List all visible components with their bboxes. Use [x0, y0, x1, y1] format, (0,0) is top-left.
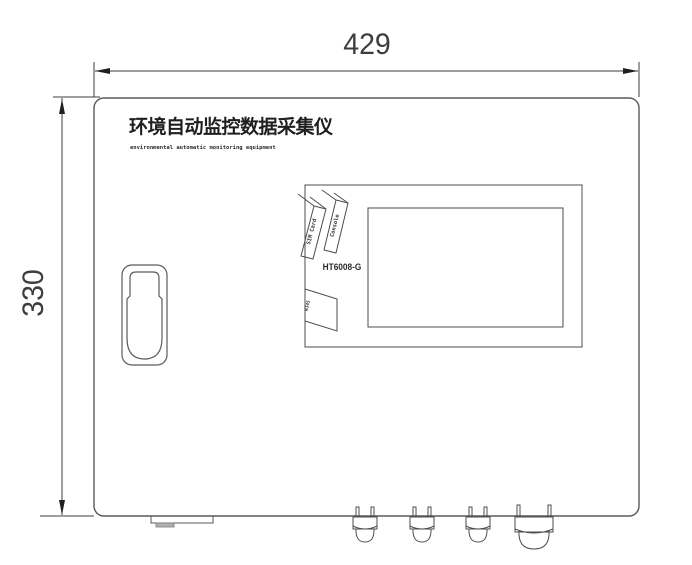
- sim-card-tag-fold-line-1: [298, 194, 314, 206]
- width-dimension: [94, 62, 639, 97]
- door-handle: [122, 265, 167, 365]
- width-arrow-right: [623, 68, 638, 74]
- width-dimension-value: 429: [320, 28, 415, 62]
- technical-drawing-canvas: 环境自动监控数据采集仪 environmental automatic moni…: [0, 0, 692, 565]
- cable-gland-2: [410, 507, 434, 542]
- cable-gland-1: [353, 507, 377, 542]
- gland4-tab-right: [548, 505, 551, 517]
- height-dimension-value: 330: [17, 269, 51, 317]
- mounting-bracket: [151, 516, 213, 527]
- drawing-linework: [0, 0, 692, 565]
- bracket-foot: [156, 523, 174, 527]
- gland1-dome: [356, 529, 374, 542]
- height-arrow-bottom: [59, 500, 65, 515]
- screen: [368, 208, 563, 327]
- height-arrow-top: [59, 99, 65, 114]
- cabinet-outline: [94, 98, 639, 516]
- width-arrow-left: [95, 68, 110, 74]
- gland4-dome: [519, 531, 549, 549]
- gland2-dome: [413, 529, 431, 542]
- device-title-chinese: 环境自动监控数据采集仪: [129, 112, 333, 139]
- console-tag-fold-line-1: [322, 190, 336, 200]
- cable-gland-4-large: [515, 505, 553, 549]
- model-number-label: HT6008-G: [305, 262, 379, 272]
- gland4-tab-left: [517, 505, 520, 517]
- device-title-english: environmental automatic monitoring equip…: [130, 145, 276, 151]
- bracket-outline: [151, 516, 213, 523]
- gland4-nut: [515, 517, 553, 532]
- cable-gland-3: [466, 507, 490, 542]
- gland3-dome: [469, 529, 487, 542]
- handle-grip-outline: [127, 272, 162, 359]
